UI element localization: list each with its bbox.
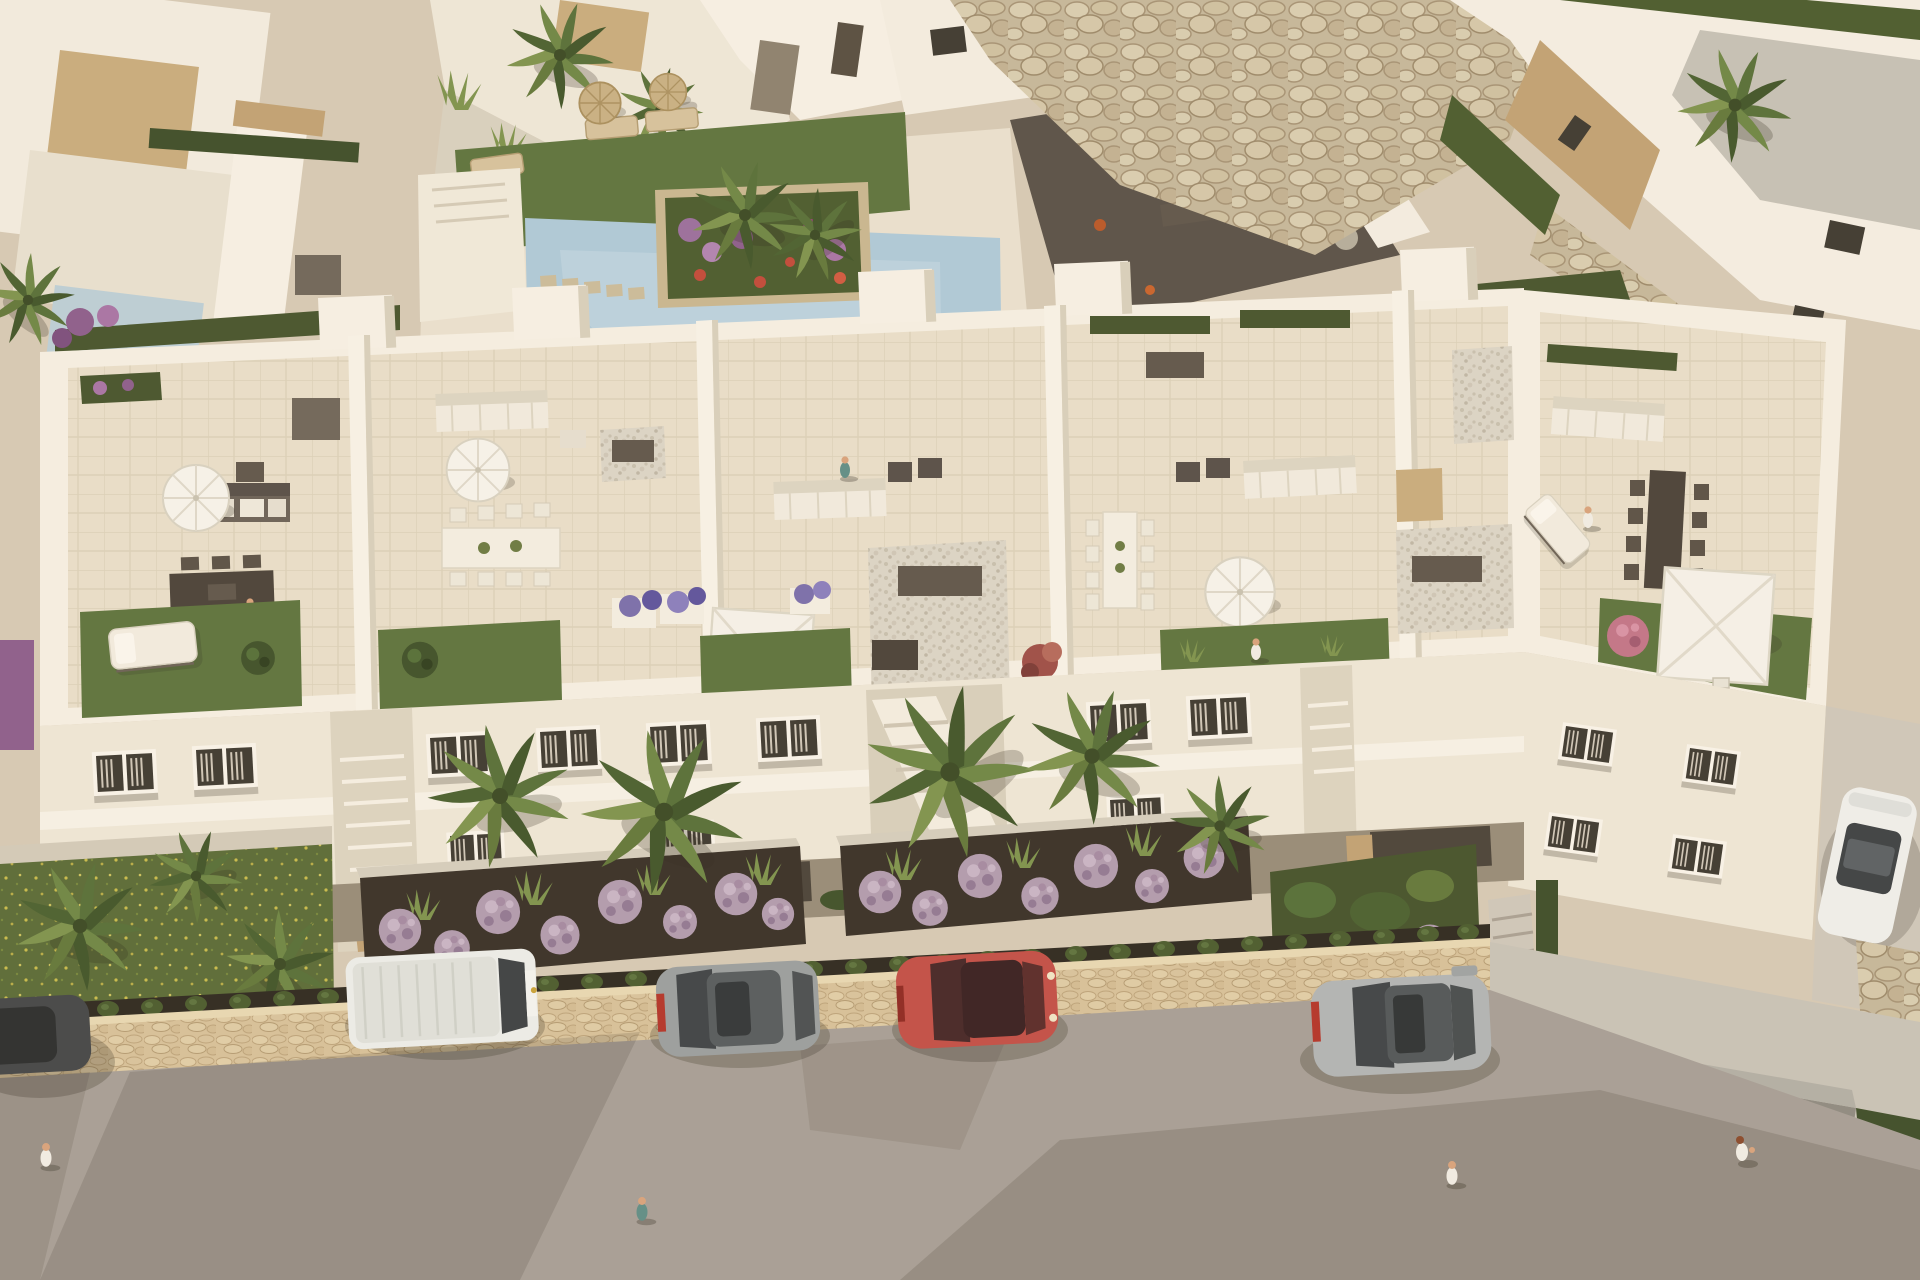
aerial-render-scene [0,0,1920,1280]
warm-light-overlay [0,0,1920,1280]
aerial-render [0,0,1920,1280]
